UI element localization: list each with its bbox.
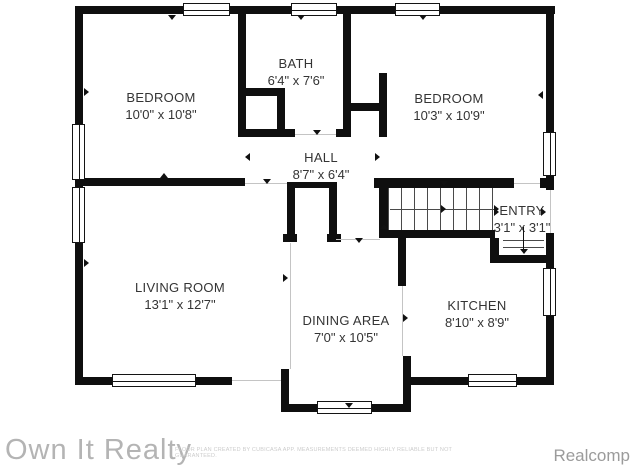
room-name: LIVING ROOM bbox=[105, 280, 255, 296]
window-symbol bbox=[543, 268, 556, 316]
opening-line bbox=[514, 183, 540, 184]
door-marker bbox=[283, 274, 288, 282]
wall-segment bbox=[379, 73, 387, 137]
room-name: BEDROOM bbox=[374, 91, 524, 107]
window-symbol bbox=[72, 124, 85, 180]
wall-segment bbox=[287, 182, 336, 188]
wall-segment bbox=[327, 234, 341, 242]
window-symbol bbox=[468, 374, 517, 387]
opening-line bbox=[290, 243, 291, 369]
door-marker bbox=[375, 153, 380, 161]
wall-segment bbox=[403, 369, 411, 412]
door-marker bbox=[403, 314, 408, 322]
wall-segment bbox=[379, 230, 495, 238]
wall-segment bbox=[398, 238, 406, 286]
window-mullion bbox=[79, 125, 80, 179]
room-dimensions: 10'3" x 10'9" bbox=[374, 107, 524, 124]
staircase-down-arrow bbox=[523, 227, 524, 251]
window-symbol bbox=[395, 3, 440, 16]
room-label-bedroom-2: BEDROOM 10'3" x 10'9" bbox=[374, 91, 524, 124]
opening-line bbox=[232, 380, 281, 381]
window-mullion bbox=[469, 381, 516, 382]
wall-segment bbox=[83, 178, 245, 186]
wall-segment bbox=[238, 14, 246, 133]
window-mullion bbox=[550, 269, 551, 315]
wall-segment bbox=[343, 7, 351, 130]
wall-segment bbox=[287, 182, 295, 240]
opening-line bbox=[550, 190, 551, 233]
room-label-dining-area: DINING AREA 7'0" x 10'5" bbox=[271, 313, 421, 346]
room-name: HALL bbox=[246, 150, 396, 166]
window-mullion bbox=[113, 381, 195, 382]
wall-segment bbox=[403, 356, 411, 371]
measurement-marker bbox=[440, 181, 448, 186]
brand-watermark: Own It Realty bbox=[5, 434, 192, 466]
disclaimer-text: FLOOR PLAN CREATED BY CUBICASA APP. MEAS… bbox=[175, 447, 455, 459]
door-marker bbox=[441, 205, 446, 213]
wall-segment bbox=[351, 103, 379, 111]
measurement-marker bbox=[160, 173, 168, 178]
floor-plan-image: BEDROOM 10'0" x 10'8" BATH 6'4" x 7'6" B… bbox=[0, 0, 634, 472]
door-marker bbox=[84, 88, 89, 96]
room-dimensions: 13'1" x 12'7" bbox=[105, 296, 255, 313]
window-symbol bbox=[543, 132, 556, 176]
room-dimensions: 8'10" x 8'9" bbox=[402, 314, 552, 331]
door-marker bbox=[84, 259, 89, 267]
measurement-marker bbox=[168, 15, 176, 20]
window-mullion bbox=[79, 188, 80, 242]
door-marker bbox=[541, 208, 546, 216]
measurement-marker bbox=[355, 238, 363, 243]
wall-segment bbox=[540, 178, 554, 188]
measurement-marker bbox=[263, 179, 271, 184]
wall-segment bbox=[336, 129, 351, 137]
attribution-text: Realcomp bbox=[553, 446, 630, 466]
floor-plan: BEDROOM 10'0" x 10'8" BATH 6'4" x 7'6" B… bbox=[0, 0, 634, 420]
measurement-marker bbox=[419, 15, 427, 20]
room-dimensions: 7'0" x 10'5" bbox=[271, 329, 421, 346]
window-symbol bbox=[72, 187, 85, 243]
wall-segment bbox=[283, 234, 297, 242]
room-name: KITCHEN bbox=[402, 298, 552, 314]
door-marker bbox=[245, 153, 250, 161]
room-dimensions: 10'0" x 10'8" bbox=[86, 106, 236, 123]
measurement-marker bbox=[432, 378, 440, 383]
measurement-marker bbox=[313, 130, 321, 135]
measurement-marker bbox=[345, 403, 353, 408]
room-label-kitchen: KITCHEN 8'10" x 8'9" bbox=[402, 298, 552, 331]
door-marker bbox=[494, 208, 499, 216]
wall-segment bbox=[238, 129, 295, 137]
room-label-bedroom-1: BEDROOM 10'0" x 10'8" bbox=[86, 90, 236, 123]
window-mullion bbox=[292, 10, 336, 11]
measurement-marker bbox=[297, 15, 305, 20]
room-name: DINING AREA bbox=[271, 313, 421, 329]
window-mullion bbox=[396, 10, 439, 11]
window-mullion bbox=[550, 133, 551, 175]
door-marker bbox=[538, 91, 543, 99]
measurement-marker bbox=[380, 224, 388, 229]
room-label-living-room: LIVING ROOM 13'1" x 12'7" bbox=[105, 280, 255, 313]
wall-segment bbox=[329, 182, 337, 240]
window-symbol bbox=[183, 3, 230, 16]
room-name: BEDROOM bbox=[86, 90, 236, 106]
window-symbol bbox=[112, 374, 196, 387]
measurement-marker bbox=[520, 249, 528, 254]
window-mullion bbox=[184, 10, 229, 11]
wall-segment bbox=[494, 255, 554, 263]
